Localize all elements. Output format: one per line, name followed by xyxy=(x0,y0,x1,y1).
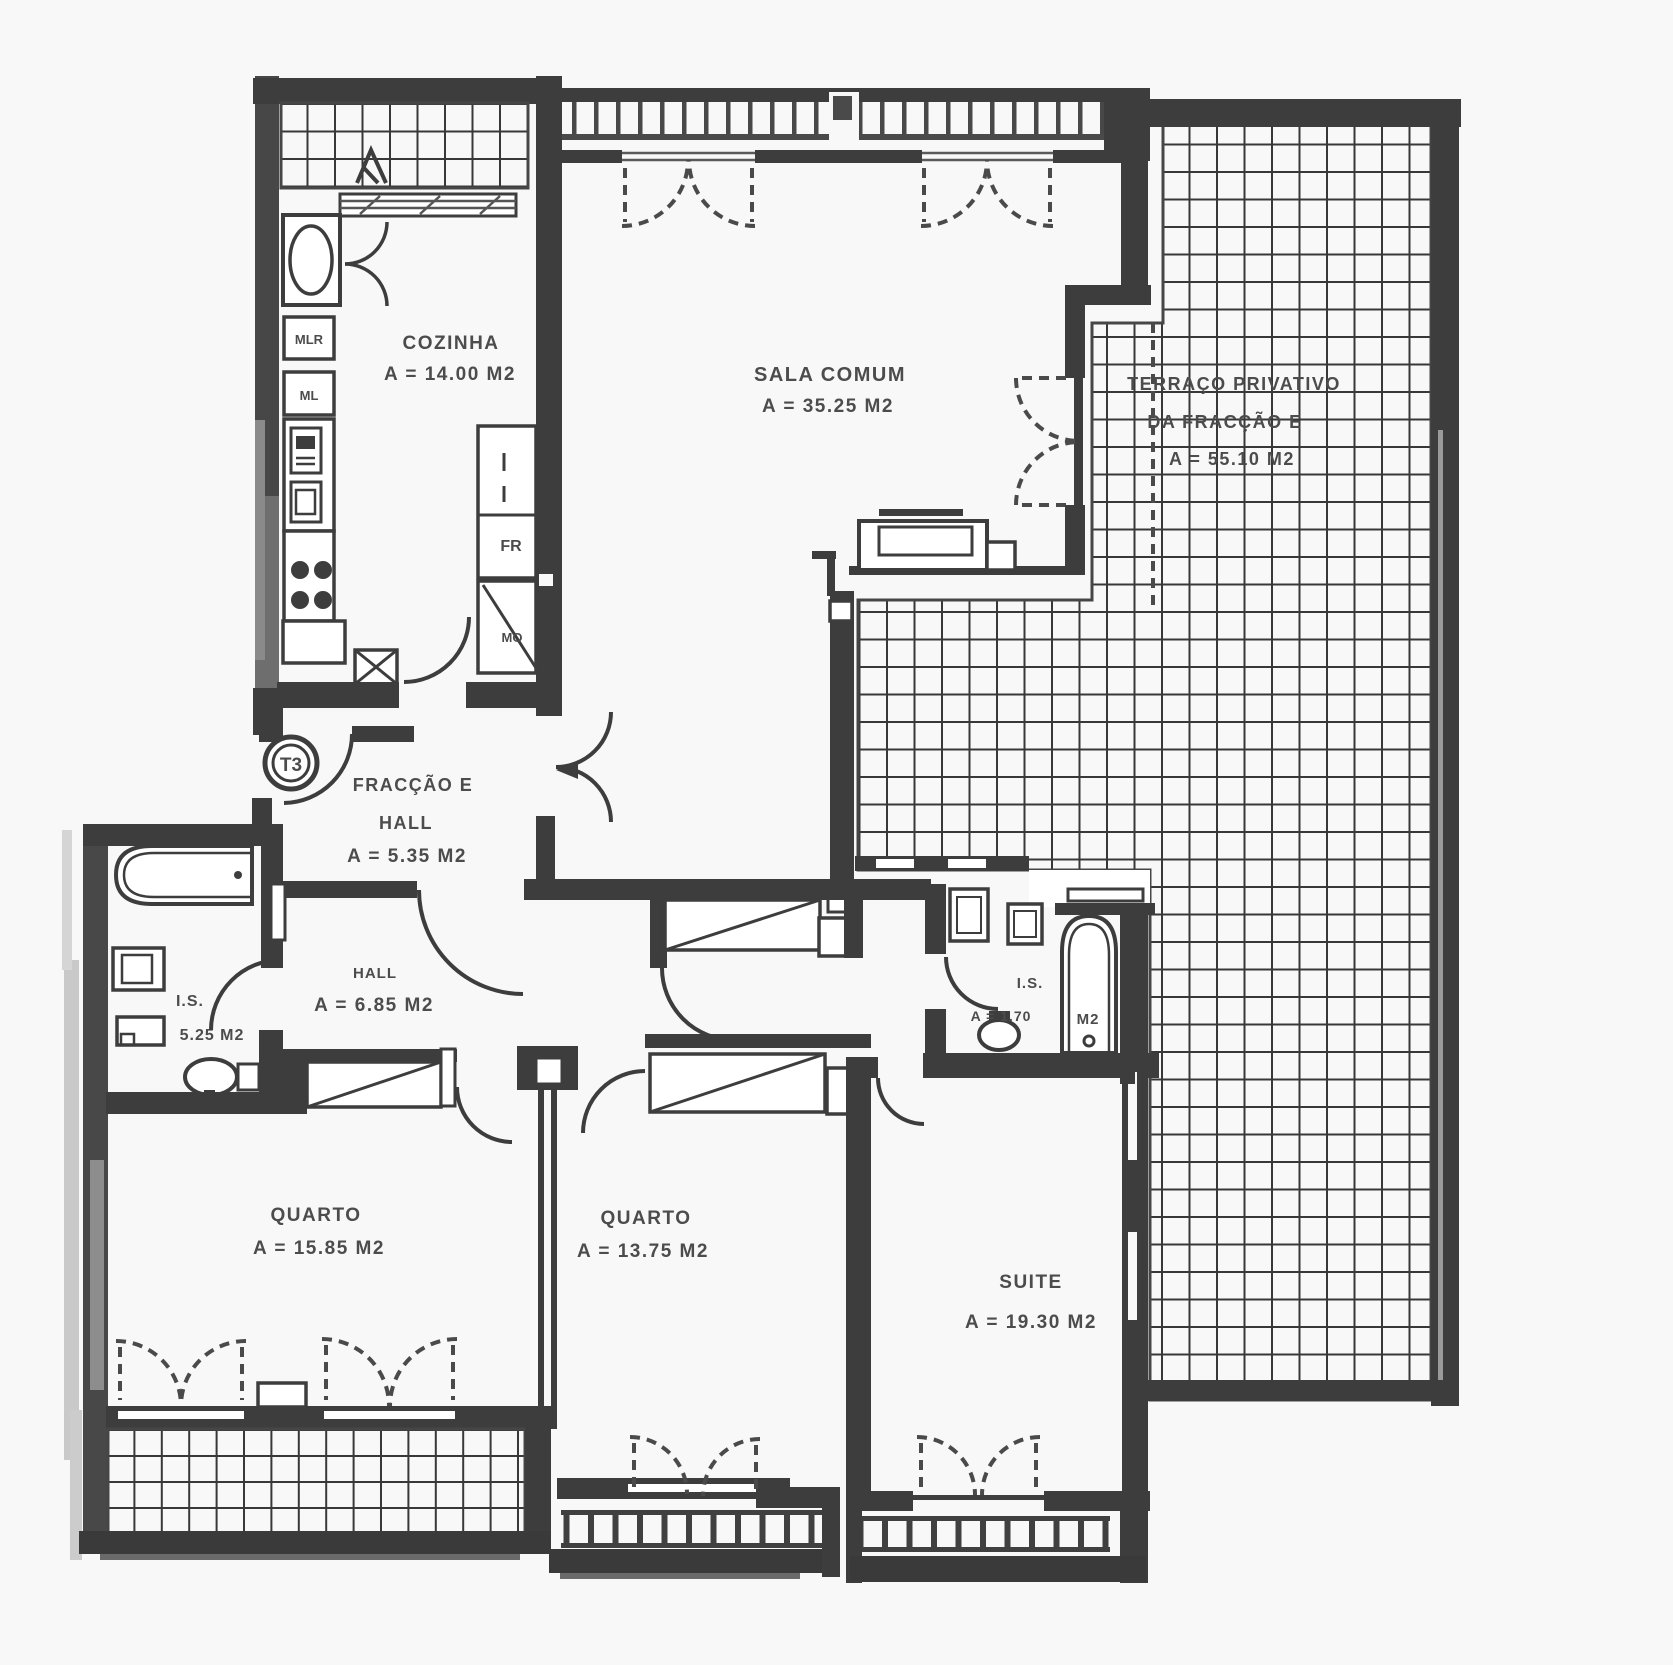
svg-text:HALL: HALL xyxy=(353,965,397,982)
svg-text:SALA COMUM: SALA COMUM xyxy=(754,364,906,386)
svg-text:FRACÇÃO E: FRACÇÃO E xyxy=(353,774,474,795)
svg-text:MLR: MLR xyxy=(295,332,324,347)
svg-text:QUARTO: QUARTO xyxy=(601,1208,692,1229)
svg-text:HALL: HALL xyxy=(379,813,433,833)
svg-text:A = 14.00 M2: A = 14.00 M2 xyxy=(384,364,516,385)
svg-text:A = 1.70: A = 1.70 xyxy=(971,1008,1032,1024)
svg-text:COZINHA: COZINHA xyxy=(402,333,499,354)
svg-text:I.S.: I.S. xyxy=(1017,975,1044,992)
svg-text:FR: FR xyxy=(500,538,522,555)
svg-text:A = 55.10 M2: A = 55.10 M2 xyxy=(1169,449,1295,469)
svg-text:A = 13.75 M2: A = 13.75 M2 xyxy=(577,1241,709,1262)
svg-text:TERRAÇO PRIVATIVO: TERRAÇO PRIVATIVO xyxy=(1127,374,1341,394)
svg-text:SUITE: SUITE xyxy=(999,1272,1062,1293)
svg-text:QUARTO: QUARTO xyxy=(271,1205,362,1226)
svg-text:A = 15.85 M2: A = 15.85 M2 xyxy=(253,1238,385,1259)
svg-text:DA FRACÇÃO E: DA FRACÇÃO E xyxy=(1147,411,1302,432)
svg-text:A = 19.30 M2: A = 19.30 M2 xyxy=(965,1312,1097,1333)
svg-text:MO: MO xyxy=(502,630,523,645)
svg-text:ML: ML xyxy=(300,388,319,403)
svg-text:A = 35.25 M2: A = 35.25 M2 xyxy=(762,396,894,417)
svg-text:T3: T3 xyxy=(280,755,302,776)
svg-text:M2: M2 xyxy=(1077,1011,1100,1028)
svg-text:A = 6.85 M2: A = 6.85 M2 xyxy=(314,995,434,1016)
svg-text:I.S.: I.S. xyxy=(176,993,204,1010)
svg-text:A = 5.35 M2: A = 5.35 M2 xyxy=(347,846,467,867)
